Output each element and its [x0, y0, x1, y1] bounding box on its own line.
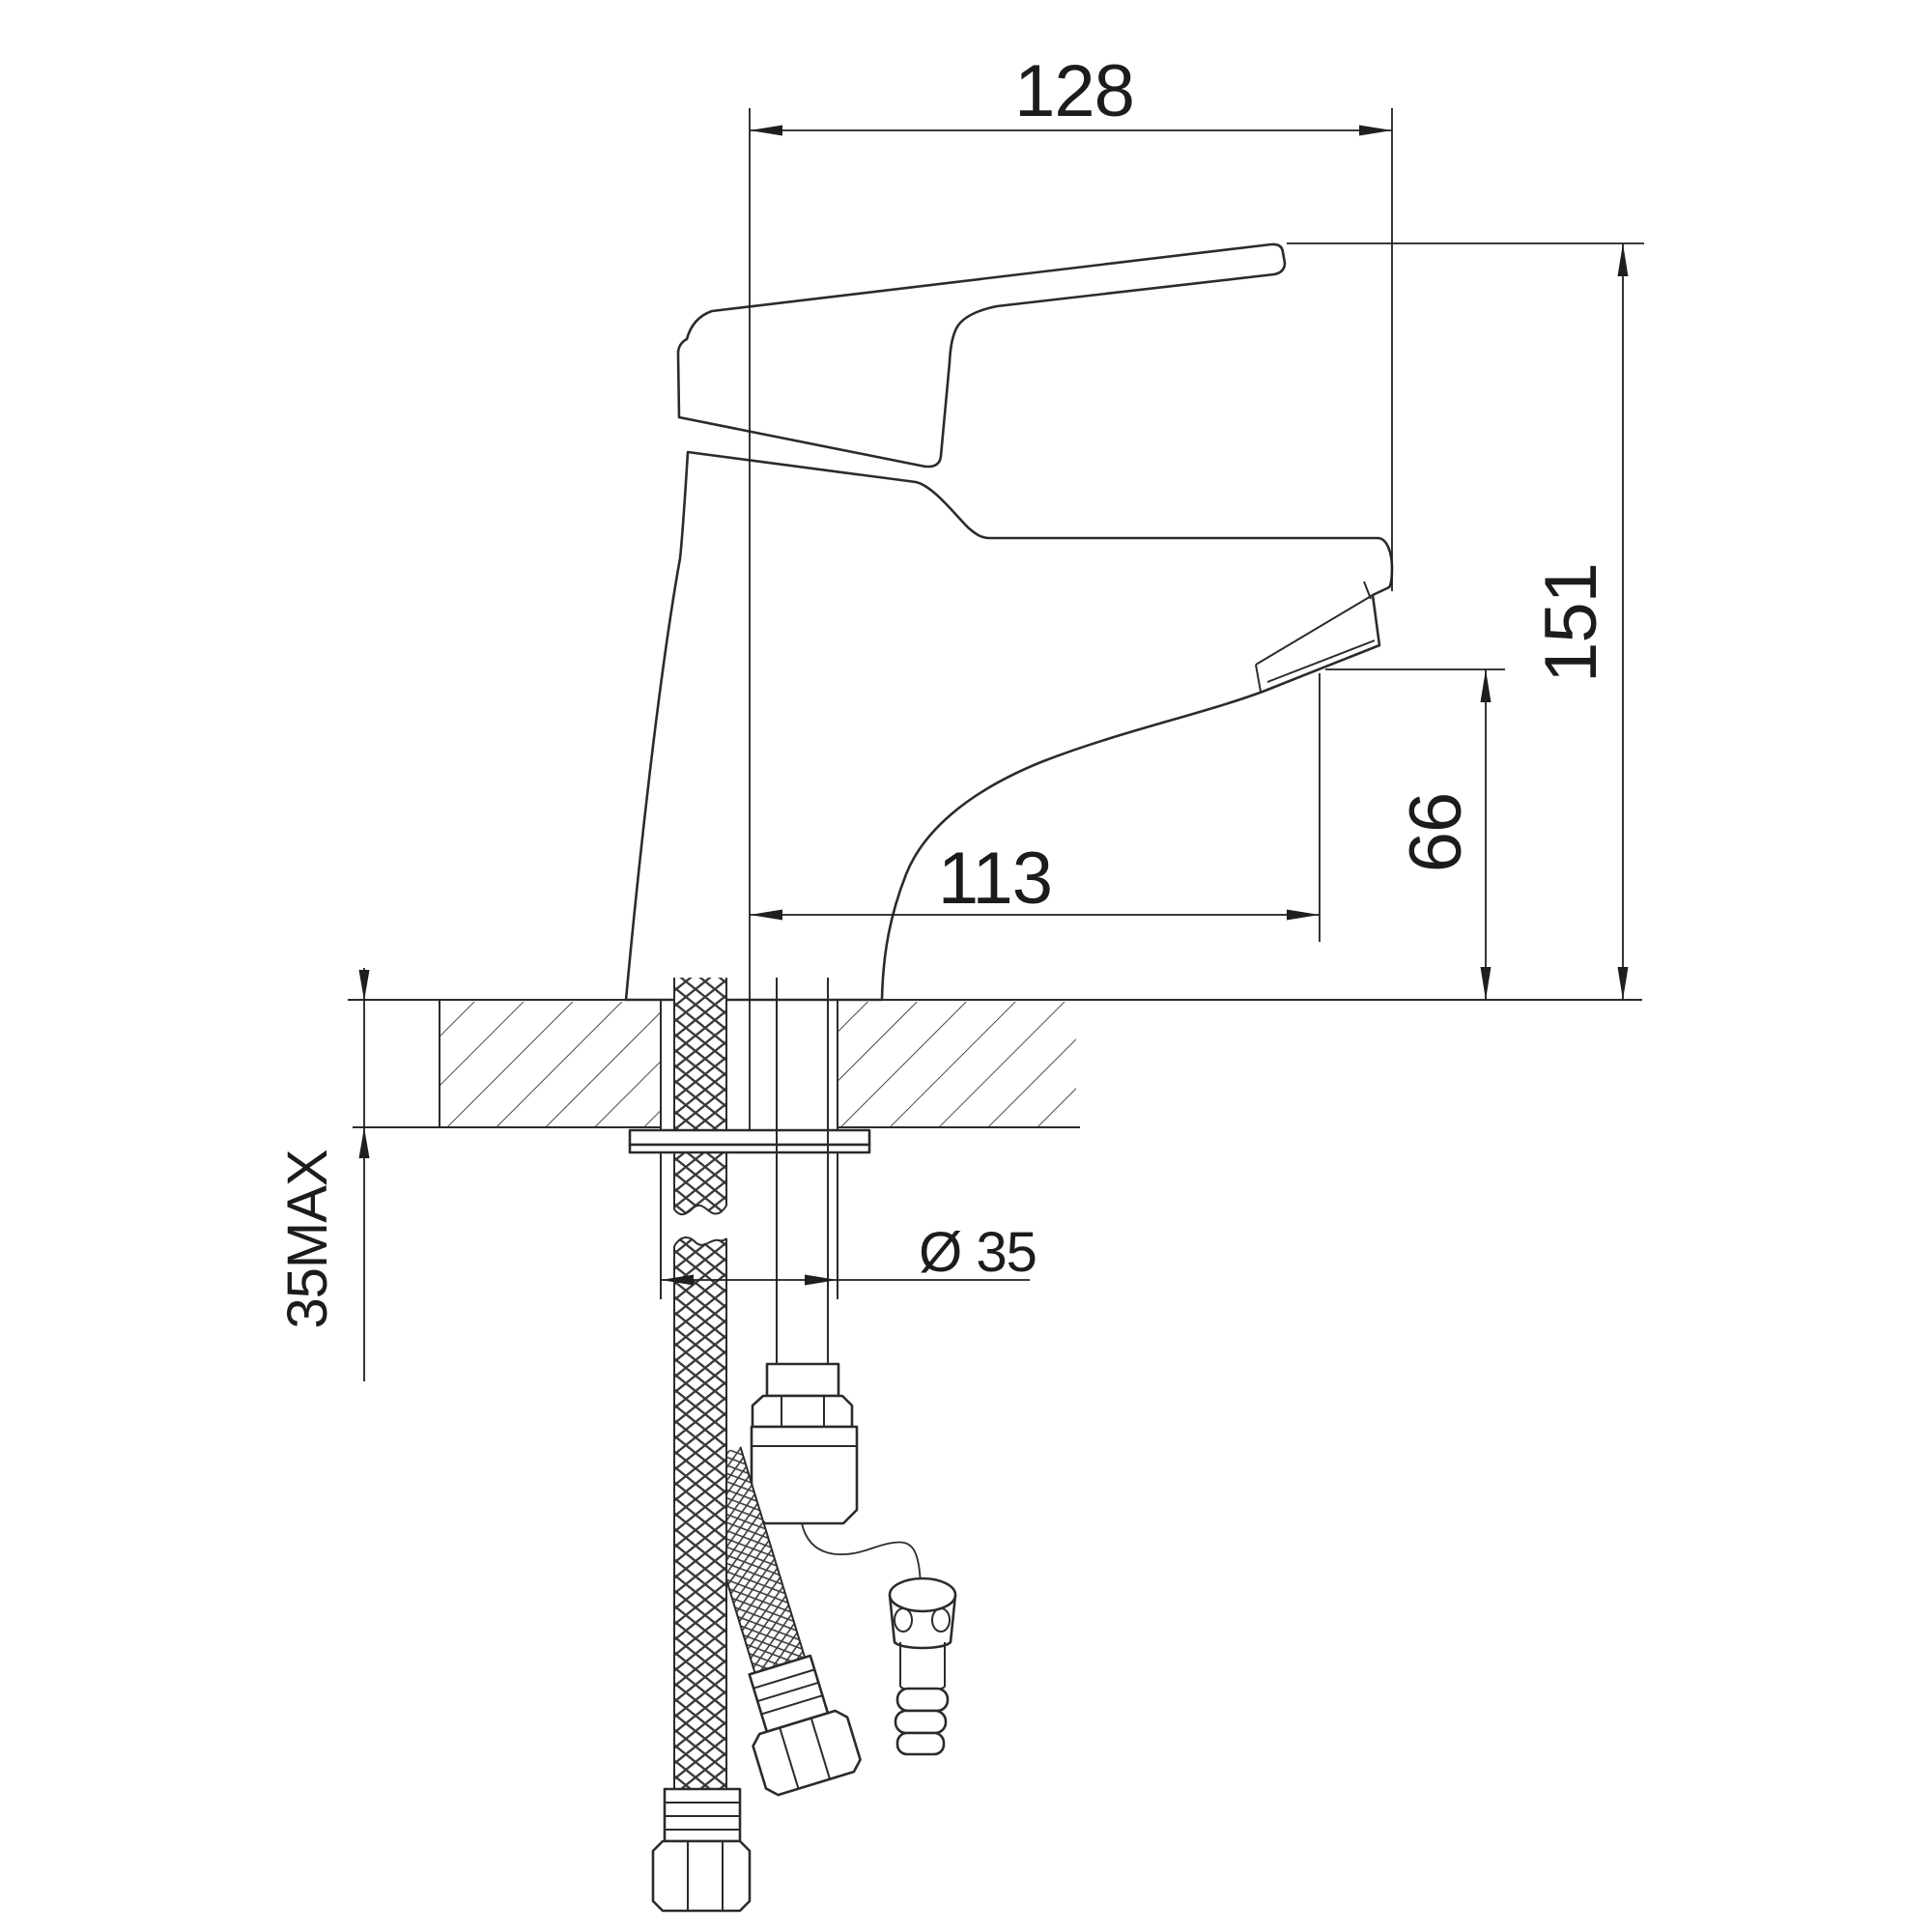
corrugation-rib-1	[897, 1689, 948, 1711]
dimension-label-hole-diameter: Ø 35	[919, 1221, 1037, 1284]
arrowhead-66-top	[1481, 669, 1492, 702]
hose-end-hex-nut	[653, 1841, 750, 1911]
dimension-label-151: 151	[1530, 563, 1612, 683]
arrowhead-151-top	[1618, 243, 1629, 276]
dimension-35max: 35MAX	[276, 968, 370, 1381]
corrugation-rib-3	[897, 1733, 944, 1754]
technical-drawing-page: 128 151 113 66 35MAX	[0, 0, 1932, 1932]
arrowhead-113-right	[1287, 910, 1320, 921]
arrowhead-128-left	[750, 126, 782, 136]
faucet-lever-handle	[678, 244, 1285, 467]
flange-washer	[630, 1145, 869, 1152]
arrowhead-128-right	[1359, 126, 1392, 136]
faucet-technical-drawing: 128 151 113 66 35MAX	[0, 0, 1932, 1932]
dimension-label-113: 113	[938, 838, 1052, 920]
fitting-body	[752, 1427, 857, 1523]
mounting-flange	[630, 1130, 869, 1152]
dimension-label-128: 128	[1014, 50, 1134, 132]
dimension-label-35max: 35MAX	[276, 1150, 339, 1329]
corrugated-connector	[890, 1578, 955, 1754]
arrowhead-hole-right	[805, 1275, 838, 1286]
fitting-collar	[767, 1364, 838, 1396]
arrowhead-151-bottom	[1618, 967, 1629, 1000]
countertop-hatch-left	[440, 1002, 660, 1126]
braided-hose-upper	[674, 978, 726, 1214]
dimension-66: 66	[1395, 669, 1492, 1000]
corrugation-rib-2	[895, 1711, 946, 1733]
fitting-hex-nut	[753, 1396, 852, 1427]
countertop-hatch-right	[838, 1002, 1076, 1126]
arrowhead-35max-bottom	[359, 1127, 370, 1158]
hose-lower-braid	[674, 1237, 726, 1789]
dimension-151: 151	[1530, 243, 1629, 1000]
dimension-128: 128	[750, 50, 1392, 136]
supply-pipes	[777, 978, 828, 1364]
connector-cap-rim	[890, 1578, 955, 1611]
flange-plate	[630, 1130, 869, 1145]
compression-fitting	[752, 1364, 857, 1523]
arrowhead-66-bottom	[1481, 967, 1492, 1000]
hose-upper-braid	[674, 978, 726, 1214]
dimension-label-66: 66	[1395, 793, 1477, 873]
arrowhead-35max-top	[359, 970, 370, 1001]
